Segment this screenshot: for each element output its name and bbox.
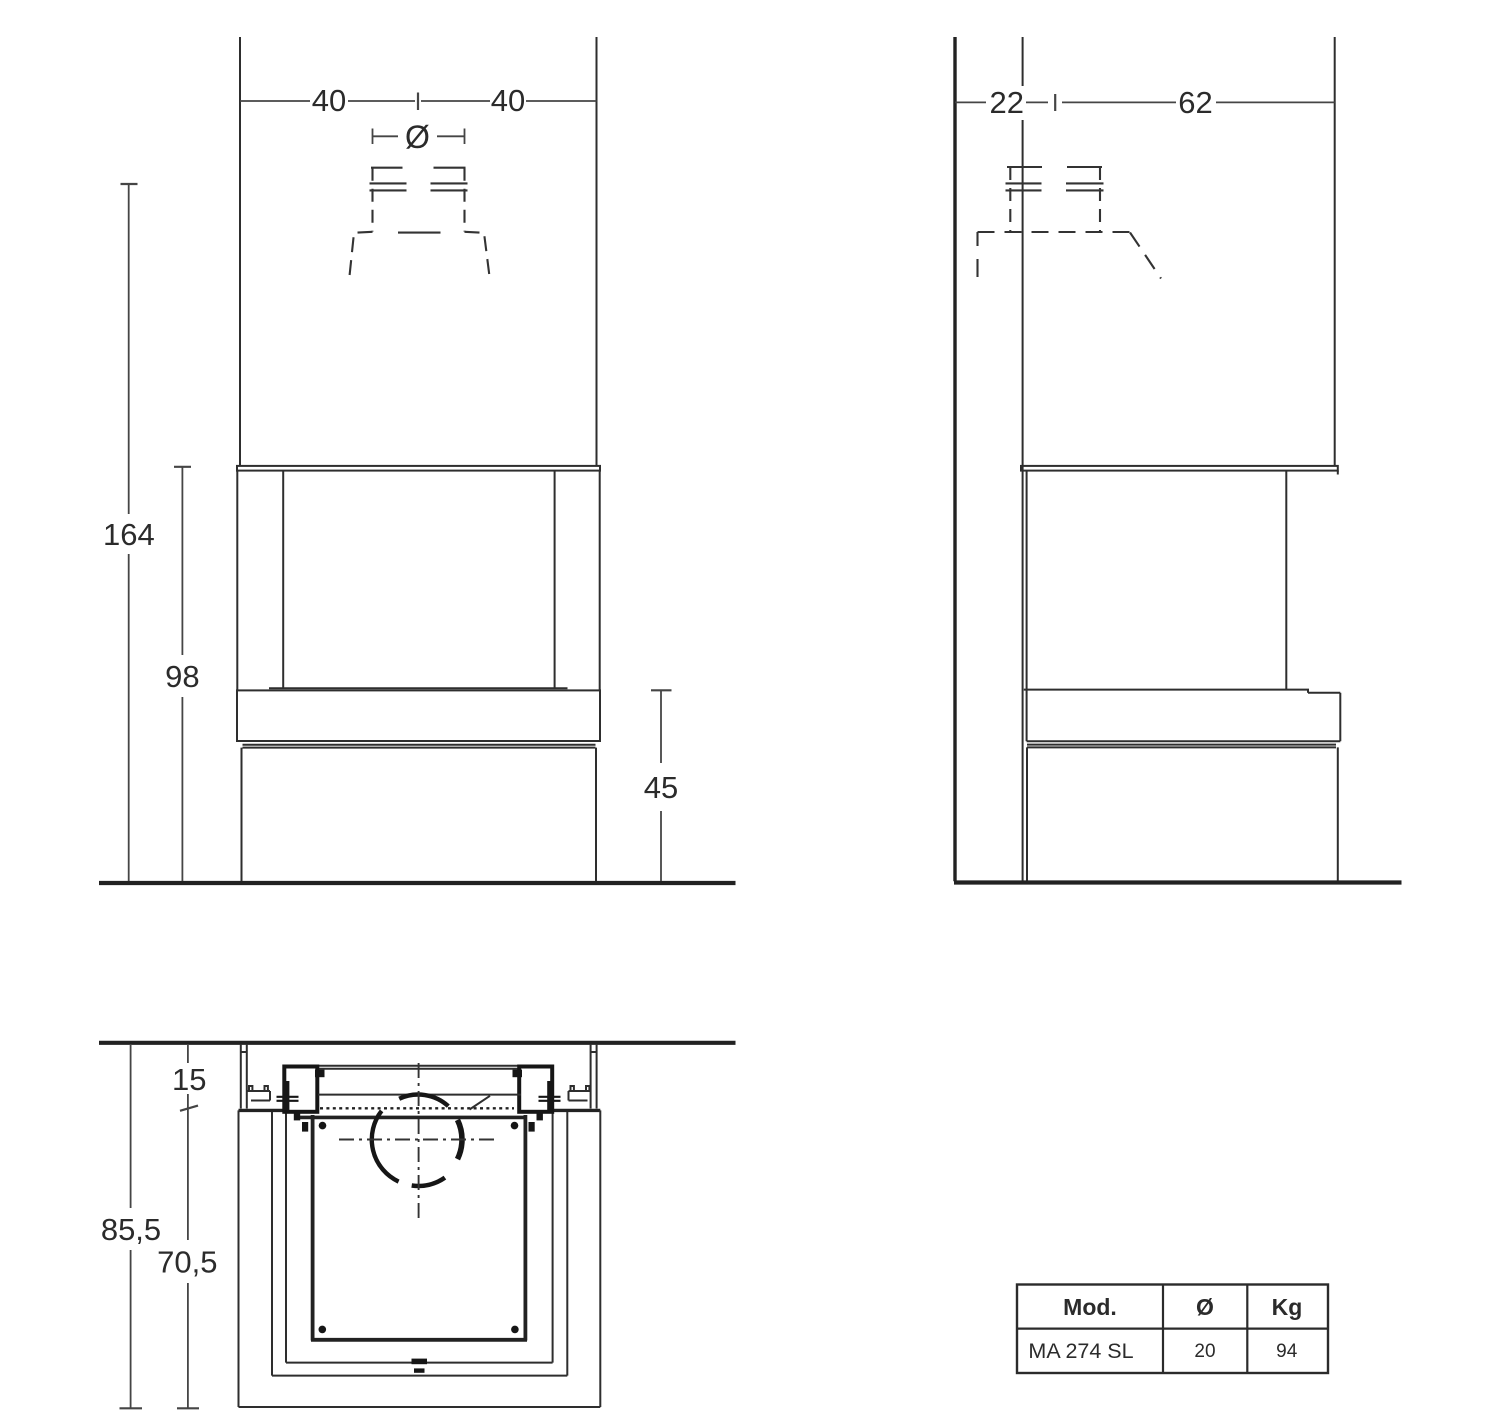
svg-text:Mod.: Mod.	[1063, 1294, 1117, 1320]
svg-text:20: 20	[1194, 1341, 1215, 1362]
svg-text:40: 40	[491, 83, 525, 118]
svg-text:40: 40	[312, 83, 346, 118]
svg-text:164: 164	[103, 517, 155, 552]
svg-text:15: 15	[172, 1062, 206, 1097]
svg-text:70,5: 70,5	[157, 1245, 217, 1280]
svg-text:MA 274 SL: MA 274 SL	[1028, 1339, 1133, 1363]
svg-text:Kg: Kg	[1272, 1294, 1303, 1320]
svg-text:85,5: 85,5	[101, 1212, 161, 1247]
svg-text:98: 98	[165, 659, 199, 694]
svg-text:62: 62	[1178, 85, 1212, 120]
svg-text:94: 94	[1276, 1341, 1298, 1362]
svg-text:Ø: Ø	[405, 119, 430, 155]
svg-text:45: 45	[644, 770, 678, 805]
svg-text:22: 22	[989, 85, 1023, 120]
svg-text:Ø: Ø	[1196, 1294, 1214, 1320]
